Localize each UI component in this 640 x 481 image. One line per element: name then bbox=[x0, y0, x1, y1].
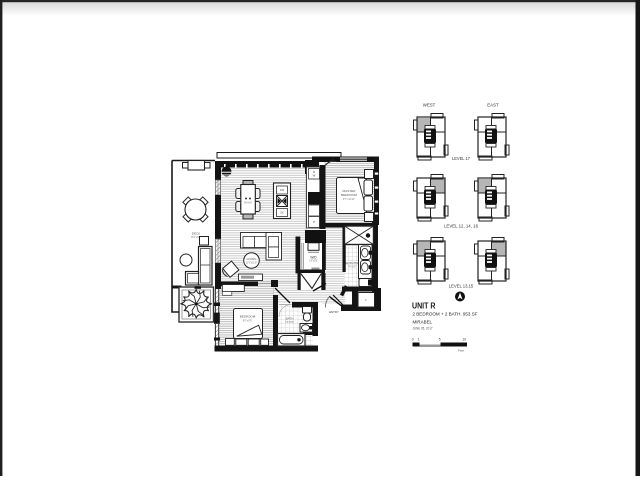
svg-text:MIRABEL: MIRABEL bbox=[413, 320, 433, 326]
svg-text:BEDROOM: BEDROOM bbox=[240, 315, 256, 319]
svg-text:9'7"x11'10": 9'7"x11'10" bbox=[343, 198, 355, 201]
svg-text:7'6"x5'0": 7'6"x5'0" bbox=[285, 321, 294, 324]
svg-text:W/D: W/D bbox=[310, 256, 317, 260]
svg-text:Feet: Feet bbox=[458, 349, 464, 353]
svg-text:9'0"x9'0": 9'0"x9'0" bbox=[243, 320, 253, 323]
svg-text:P: P bbox=[313, 220, 315, 224]
svg-text:BATH: BATH bbox=[286, 317, 294, 321]
svg-text:LEVEL 13,15: LEVEL 13,15 bbox=[449, 284, 474, 289]
svg-text:W: W bbox=[313, 174, 316, 178]
svg-text:ENTRY: ENTRY bbox=[329, 310, 339, 314]
svg-text:ENSUITE: ENSUITE bbox=[345, 261, 358, 265]
svg-text:BEDROOM: BEDROOM bbox=[341, 193, 357, 197]
svg-text:LEVEL 17: LEVEL 17 bbox=[452, 156, 471, 161]
svg-text:7'6"x5'0": 7'6"x5'0" bbox=[347, 266, 356, 269]
svg-text:DW: DW bbox=[280, 188, 285, 192]
svg-text:DINING: DINING bbox=[244, 202, 253, 205]
svg-text:UNIT R: UNIT R bbox=[412, 301, 436, 311]
svg-text:5'0"x5'6": 5'0"x5'6" bbox=[309, 261, 318, 263]
svg-text:11'0"x11'6": 11'0"x11'6" bbox=[246, 262, 258, 265]
svg-text:DECK: DECK bbox=[192, 232, 200, 236]
svg-text:2 BEDROOM + 2 BATH. 953 SF: 2 BEDROOM + 2 BATH. 953 SF bbox=[413, 312, 478, 317]
svg-text:0: 0 bbox=[412, 338, 414, 342]
svg-text:JUNE 05, 2017: JUNE 05, 2017 bbox=[413, 327, 433, 331]
svg-text:SK: SK bbox=[280, 211, 284, 215]
svg-text:LEVEL 12, 14, 16: LEVEL 12, 14, 16 bbox=[444, 224, 479, 229]
svg-text:LIVING: LIVING bbox=[247, 257, 258, 261]
svg-text:5: 5 bbox=[439, 338, 441, 342]
svg-text:1: 1 bbox=[418, 338, 420, 342]
svg-text:WEST: WEST bbox=[423, 103, 436, 109]
svg-text:EAST: EAST bbox=[487, 103, 499, 109]
svg-text:10: 10 bbox=[463, 338, 467, 342]
